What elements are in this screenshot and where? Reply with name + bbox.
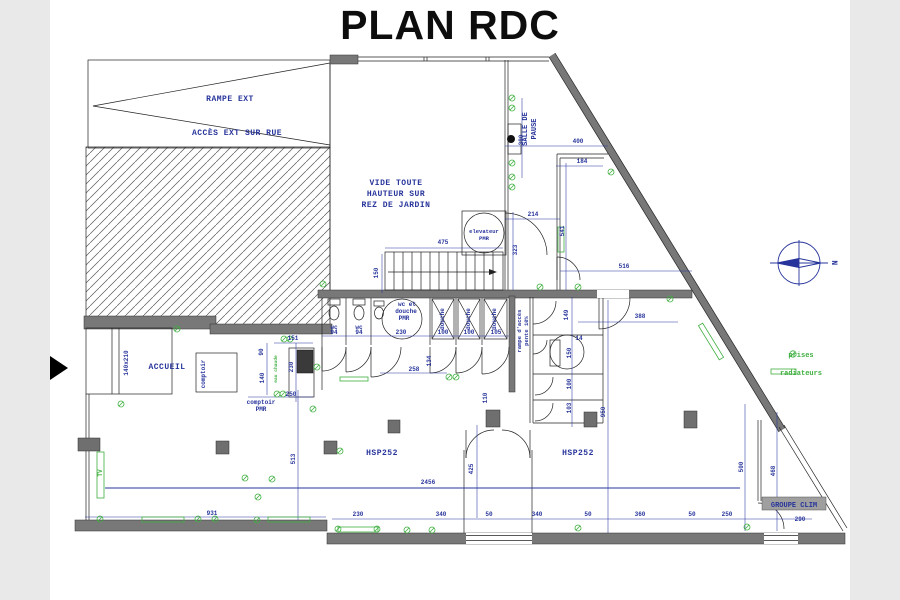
dimension-label: 360 <box>635 511 646 518</box>
dimension-label: 50 <box>584 511 592 518</box>
pillar <box>584 412 597 427</box>
wc-label: wc <box>330 324 338 331</box>
dimension-label: 468 <box>770 465 777 476</box>
elevator-label: PMR <box>479 235 490 242</box>
dimension-label: 214 <box>528 211 539 218</box>
wc-pmr-label: PMR <box>399 315 410 322</box>
water-heater-label: eau chaude <box>273 355 279 383</box>
pmr-counter-label: PMR <box>256 406 267 413</box>
hvac-unit: GROUPE CLIM <box>762 497 826 510</box>
reception-counter <box>196 348 314 397</box>
entrance-vestibule <box>464 430 532 533</box>
void-label: VIDE TOUTE <box>369 179 422 188</box>
dimension-label: 230 <box>396 329 407 336</box>
dimension-label: 323 <box>512 244 519 255</box>
pillar <box>216 441 229 454</box>
outlet-icon <box>510 175 514 179</box>
outlet-icon <box>430 528 434 532</box>
outlet-icon <box>315 365 319 369</box>
dimension-label: 400 <box>573 138 584 145</box>
window-size-label: 140x210 <box>123 350 130 376</box>
dimension-label: 90 <box>258 348 265 356</box>
dimension-label: 250 <box>286 391 297 398</box>
break-room-label: SALLE DE <box>522 112 530 146</box>
wc-pmr-label: douche <box>395 308 417 315</box>
dimension-label: 2456 <box>421 479 436 486</box>
dimension-label: 230 <box>353 511 364 518</box>
dimension-label: 340 <box>436 511 447 518</box>
outlet-icon <box>745 525 749 529</box>
outlet-icon <box>405 528 409 532</box>
dimension-label: 134 <box>426 355 433 366</box>
outlet-icon <box>510 96 514 100</box>
outlet-icon <box>576 285 580 289</box>
dimension-label: 513 <box>290 453 297 464</box>
dimension-label: 258 <box>409 366 420 373</box>
dimension-label: 151 <box>288 335 299 342</box>
floor-plan-drawing: 4751503233804001842145415163881519014023… <box>0 0 900 600</box>
dimension-label: 50 <box>485 511 493 518</box>
outlet-icon <box>576 526 580 530</box>
dimension-label: 14 <box>575 335 583 342</box>
outlet-icon <box>454 375 458 379</box>
dimension-label: 103 <box>566 402 573 413</box>
ramp-label: RAMPE EXT <box>206 95 254 104</box>
dimension-label: 516 <box>619 263 630 270</box>
legend-outlets-label: prises <box>788 352 813 360</box>
dimension-label: 475 <box>438 239 449 246</box>
pillar <box>388 420 400 433</box>
pillar <box>78 438 100 451</box>
fridge-icon <box>297 350 313 373</box>
dimension-label: 931 <box>207 510 218 517</box>
void-label: REZ DE JARDIN <box>362 201 431 210</box>
outlet-icon <box>256 495 260 499</box>
pillar <box>486 410 500 427</box>
hvac-label: GROUPE CLIM <box>771 502 817 510</box>
dimension-label: 340 <box>532 511 543 518</box>
outlet-icon <box>119 402 123 406</box>
shower-label: douche <box>465 308 472 330</box>
outlet-icon <box>270 477 274 481</box>
hatched-exterior-zone <box>86 147 330 332</box>
access-ramp-label: rampe d'accès <box>516 310 523 353</box>
pillar <box>324 441 337 454</box>
break-room-label: PAUSE <box>531 118 539 139</box>
tv-label: TV <box>97 469 104 477</box>
north-label: N <box>829 260 838 265</box>
shower-label: douche <box>439 308 446 330</box>
outlet-icon <box>375 527 379 531</box>
outlet-icon <box>275 392 279 396</box>
dimension-label: 100 <box>566 378 573 389</box>
dimension-label: 184 <box>577 158 588 165</box>
outlet-icon <box>447 375 451 379</box>
outlet-icon <box>311 407 315 411</box>
reception-label: ACCUEIL <box>148 363 185 372</box>
outlet-icon <box>282 337 286 341</box>
dimension-label: 250 <box>722 511 733 518</box>
ceiling-height-label: HSP252 <box>366 449 398 458</box>
outlet-icon <box>510 106 514 110</box>
staircase <box>385 252 503 290</box>
outlet-icon <box>338 449 342 453</box>
outlet-icon <box>243 476 247 480</box>
pillar <box>684 411 697 428</box>
access-ramp-label: pente 10% <box>523 315 530 345</box>
dimension-label: 950 <box>600 406 607 417</box>
toilet-icon <box>328 299 384 320</box>
legend-radiators-label: radiateurs <box>780 370 822 378</box>
dimension-label: 230 <box>288 361 295 372</box>
dimension-label: 500 <box>738 461 745 472</box>
outlet-icon <box>510 185 514 189</box>
counter-label: comptoir <box>200 359 207 388</box>
elevator-label: elevateur <box>469 228 499 235</box>
outlet-icon <box>609 170 613 174</box>
wc-label: wc <box>355 324 363 331</box>
dimension-label: 388 <box>635 313 646 320</box>
dimension-label: 290 <box>795 516 806 523</box>
dimension-label: 541 <box>559 225 566 236</box>
dimension-label: 425 <box>468 463 475 474</box>
wc-pmr-label: wc et <box>398 301 416 308</box>
pmr-counter-label: comptoir <box>247 399 276 406</box>
dimension-label: 150 <box>373 267 380 278</box>
legend: prises radiateurs <box>771 351 822 378</box>
shower-label: douche <box>491 308 498 330</box>
outlet-icon <box>281 392 285 396</box>
nav-arrow-icon[interactable] <box>50 356 68 380</box>
void-label: HAUTEUR SUR <box>367 190 425 199</box>
radiator-icon <box>340 377 368 381</box>
outlet-icon <box>510 161 514 165</box>
dimension-label: 50 <box>688 511 696 518</box>
sanitary-block <box>322 296 515 392</box>
dimension-label: 110 <box>482 392 489 403</box>
dimension-label: 150 <box>566 347 573 358</box>
compass-icon: N <box>770 240 838 286</box>
outlet-icon <box>538 285 542 289</box>
radiator-icon <box>338 527 378 532</box>
dimension-label: 140 <box>259 372 266 383</box>
ceiling-height-label: HSP252 <box>562 449 594 458</box>
dimension-label: 149 <box>563 309 570 320</box>
street-access-label: ACCÈS EXT SUR RUE <box>192 129 282 138</box>
